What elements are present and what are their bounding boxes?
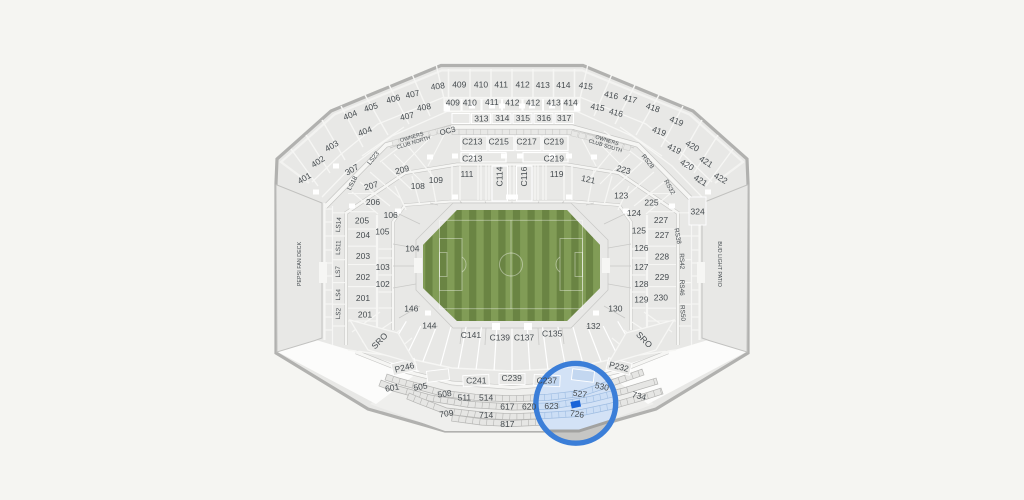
svg-text:227: 227 bbox=[654, 215, 668, 225]
svg-text:144: 144 bbox=[422, 320, 436, 330]
svg-text:313: 313 bbox=[474, 113, 488, 123]
svg-text:BUD LIGHT PATIO: BUD LIGHT PATIO bbox=[716, 241, 722, 287]
svg-text:410: 410 bbox=[463, 97, 477, 107]
svg-text:409: 409 bbox=[452, 80, 466, 90]
svg-text:204: 204 bbox=[356, 230, 370, 240]
svg-text:130: 130 bbox=[608, 303, 622, 313]
svg-text:227: 227 bbox=[655, 230, 669, 240]
svg-text:LS14: LS14 bbox=[335, 216, 343, 232]
svg-text:409: 409 bbox=[446, 97, 460, 107]
svg-text:132: 132 bbox=[586, 321, 600, 331]
svg-text:726: 726 bbox=[569, 408, 585, 420]
svg-text:412: 412 bbox=[505, 97, 519, 107]
svg-text:C116: C116 bbox=[519, 166, 529, 186]
svg-text:119: 119 bbox=[550, 169, 564, 179]
svg-text:714: 714 bbox=[479, 410, 493, 420]
svg-text:C213: C213 bbox=[462, 137, 483, 147]
svg-text:C219: C219 bbox=[544, 153, 565, 163]
svg-text:104: 104 bbox=[405, 244, 419, 254]
svg-text:620: 620 bbox=[522, 402, 536, 412]
svg-text:C215: C215 bbox=[489, 136, 510, 146]
svg-text:623: 623 bbox=[544, 401, 558, 411]
svg-text:C239: C239 bbox=[502, 373, 523, 383]
svg-text:128: 128 bbox=[634, 279, 648, 289]
svg-text:LS11: LS11 bbox=[335, 240, 343, 255]
svg-text:C137: C137 bbox=[514, 332, 535, 342]
svg-text:123: 123 bbox=[614, 191, 628, 201]
svg-text:817: 817 bbox=[500, 419, 514, 429]
svg-text:C219: C219 bbox=[544, 136, 565, 146]
svg-text:413: 413 bbox=[547, 97, 561, 107]
svg-text:103: 103 bbox=[376, 262, 390, 272]
svg-text:LS4: LS4 bbox=[335, 288, 342, 300]
svg-text:412: 412 bbox=[516, 80, 530, 90]
svg-text:410: 410 bbox=[474, 80, 488, 90]
svg-text:206: 206 bbox=[366, 197, 380, 207]
svg-text:105: 105 bbox=[375, 226, 389, 236]
svg-text:LS7: LS7 bbox=[335, 266, 342, 278]
svg-text:C114: C114 bbox=[494, 166, 504, 186]
svg-text:RS42: RS42 bbox=[678, 253, 686, 270]
svg-text:C141: C141 bbox=[461, 330, 482, 340]
svg-text:201: 201 bbox=[356, 293, 370, 303]
svg-text:508: 508 bbox=[437, 388, 453, 400]
svg-text:229: 229 bbox=[655, 272, 669, 282]
svg-text:127: 127 bbox=[634, 262, 648, 272]
svg-text:413: 413 bbox=[536, 80, 550, 90]
svg-text:511: 511 bbox=[458, 393, 472, 403]
svg-text:414: 414 bbox=[564, 97, 578, 107]
svg-text:RS50: RS50 bbox=[678, 305, 686, 322]
svg-text:124: 124 bbox=[627, 208, 641, 218]
svg-text:C237: C237 bbox=[537, 375, 558, 385]
svg-text:317: 317 bbox=[557, 113, 571, 123]
svg-text:111: 111 bbox=[460, 169, 473, 179]
svg-text:314: 314 bbox=[495, 113, 509, 123]
svg-text:411: 411 bbox=[494, 80, 508, 90]
svg-text:129: 129 bbox=[634, 294, 648, 304]
svg-text:415: 415 bbox=[578, 80, 594, 92]
svg-text:C241: C241 bbox=[466, 376, 487, 386]
svg-text:205: 205 bbox=[355, 216, 369, 226]
svg-text:324: 324 bbox=[691, 207, 705, 217]
svg-text:109: 109 bbox=[429, 175, 443, 185]
svg-text:414: 414 bbox=[556, 80, 570, 90]
svg-text:225: 225 bbox=[644, 198, 658, 208]
svg-text:LS2: LS2 bbox=[335, 307, 343, 319]
svg-text:108: 108 bbox=[411, 181, 425, 191]
svg-text:617: 617 bbox=[500, 402, 514, 412]
svg-text:709: 709 bbox=[439, 408, 455, 420]
svg-text:PEPSI FAN DECK: PEPSI FAN DECK bbox=[297, 241, 303, 286]
svg-text:C139: C139 bbox=[490, 333, 511, 343]
svg-text:RS46: RS46 bbox=[678, 280, 685, 296]
svg-text:C135: C135 bbox=[542, 329, 563, 339]
svg-text:527: 527 bbox=[572, 388, 588, 400]
svg-text:106: 106 bbox=[384, 210, 398, 220]
svg-text:203: 203 bbox=[356, 251, 370, 261]
svg-text:412: 412 bbox=[526, 97, 540, 107]
svg-text:514: 514 bbox=[479, 392, 493, 402]
svg-text:C213: C213 bbox=[462, 153, 483, 163]
svg-text:125: 125 bbox=[632, 226, 646, 236]
svg-text:201: 201 bbox=[358, 310, 372, 320]
svg-text:408: 408 bbox=[430, 80, 446, 92]
svg-text:228: 228 bbox=[655, 252, 669, 262]
svg-text:C217: C217 bbox=[516, 136, 537, 146]
svg-text:102: 102 bbox=[376, 279, 390, 289]
svg-text:202: 202 bbox=[356, 272, 370, 282]
svg-text:411: 411 bbox=[485, 97, 499, 107]
svg-text:316: 316 bbox=[537, 113, 551, 123]
svg-text:146: 146 bbox=[404, 303, 418, 313]
svg-text:126: 126 bbox=[634, 243, 648, 253]
svg-text:315: 315 bbox=[516, 113, 530, 123]
svg-text:230: 230 bbox=[654, 293, 668, 303]
